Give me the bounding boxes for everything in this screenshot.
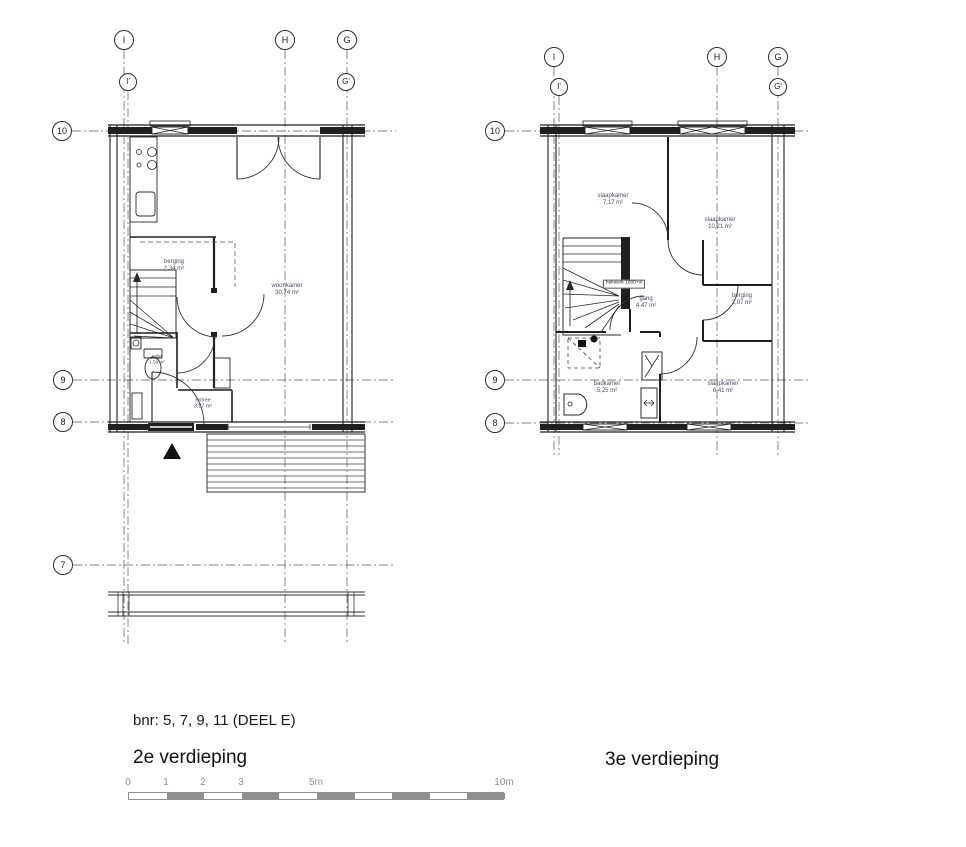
room-label-slaapkamer-1: slaapkamer 7,17 m²	[597, 193, 628, 207]
room-area: 2,34 m²	[164, 266, 184, 273]
grid-bubble-right-col-I: I	[544, 47, 564, 67]
grid-bubble-left-col-G-sub: G'	[337, 73, 355, 91]
room-name: woonkamer	[271, 283, 302, 290]
room-area: 4,47 m²	[636, 303, 656, 310]
room-name: slaapkamer	[704, 217, 735, 224]
floorplan-sheet: I H G I' G' 10 9 8 7 I H G I' G' 10 9 8 …	[0, 0, 966, 847]
room-name: berging	[164, 259, 184, 266]
plan-right-bathroom-fixtures	[564, 336, 662, 419]
grid-bubble-left-row-7: 7	[53, 555, 73, 575]
scale-segment	[467, 793, 505, 799]
room-area: 3,87 m²	[194, 404, 212, 410]
room-label-slaapkamer-2: slaapkamer 10,21 m²	[704, 217, 735, 231]
plan-left-stair	[130, 270, 176, 338]
scale-tick-5m: 5m	[309, 777, 323, 788]
scale-segment	[129, 793, 167, 799]
plan-right-walls	[540, 121, 795, 432]
grid-bubble-left-col-G: G	[337, 30, 357, 50]
room-label-badkamer: badkamer 5,25 m²	[594, 381, 621, 395]
scale-segment	[317, 793, 355, 799]
plan-right-title: 3e verdieping	[605, 749, 719, 771]
scale-segment	[279, 793, 317, 799]
scale-segment	[355, 793, 393, 799]
grid-bubble-left-col-H: H	[275, 30, 295, 50]
room-area: 2,07 m²	[732, 300, 752, 307]
grid-bubble-right-col-H: H	[707, 47, 727, 67]
grid-bubble-left-col-I-sub: I'	[119, 73, 137, 91]
room-label-gang: gang 4,47 m²	[636, 296, 656, 310]
room-label-woonkamer: woonkamer 30,74 m²	[271, 283, 302, 297]
grid-bubble-right-col-I-sub: I'	[550, 78, 568, 96]
room-label-entree: entree 3,87 m²	[194, 398, 212, 411]
grid-bubble-left-row-9: 9	[53, 370, 73, 390]
scale-segment	[167, 793, 205, 799]
railing-annotation: hekwerk 1000+vl	[603, 280, 645, 289]
room-label-berging: berging 2,34 m²	[164, 259, 184, 273]
scale-segment	[242, 793, 280, 799]
room-area: 5,25 m²	[594, 388, 621, 395]
grid-bubble-left-row-8: 8	[53, 412, 73, 432]
scale-tick-1: 1	[163, 777, 169, 788]
room-name: badkamer	[594, 381, 621, 388]
grid-bubble-right-col-G-sub: G'	[769, 78, 787, 96]
entrance-marker-icon	[163, 443, 181, 459]
plan-left-terrace	[207, 434, 365, 492]
grid-bubble-right-row-9: 9	[485, 370, 505, 390]
scale-tick-3: 3	[238, 777, 244, 788]
plan-left-window-icon	[152, 127, 188, 134]
grid-bubble-right-row-8: 8	[485, 413, 505, 433]
scale-tick-2: 2	[200, 777, 206, 788]
room-label-toilet: toilet 1,58 m²	[149, 354, 165, 365]
plan-left-kitchen	[130, 137, 157, 222]
plan-left-gallery-strip	[108, 592, 365, 616]
room-area: 6,41 m²	[707, 388, 738, 395]
room-name: gang	[636, 296, 656, 303]
room-name: slaapkamer	[597, 193, 628, 200]
room-label-slaapkamer-3: slaapkamer 6,41 m²	[707, 381, 738, 395]
room-label-berging-right: berging 2,07 m²	[732, 293, 752, 307]
scale-segment	[204, 793, 242, 799]
bnr-line: bnr: 5, 7, 9, 11 (DEEL E)	[133, 712, 296, 729]
plan-left-toilet-fixtures	[131, 337, 230, 419]
scale-bar	[128, 792, 504, 800]
room-area: 1,58 m²	[149, 359, 165, 365]
grid-bubble-right-row-10: 10	[485, 121, 505, 141]
room-name: slaapkamer	[707, 381, 738, 388]
plan-left-grid-lines	[72, 50, 396, 645]
grid-bubble-left-row-10: 10	[52, 121, 72, 141]
scale-tick-0: 0	[125, 777, 131, 788]
grid-bubble-right-col-G: G	[768, 47, 788, 67]
grid-bubble-left-col-I: I	[114, 30, 134, 50]
room-name: berging	[732, 293, 752, 300]
room-area: 30,74 m²	[271, 290, 302, 297]
room-area: 10,21 m²	[704, 224, 735, 231]
plan-left-title: 2e verdieping	[133, 747, 247, 769]
scale-tick-10m: 10m	[494, 777, 513, 788]
scale-segment	[430, 793, 468, 799]
room-area: 7,17 m²	[597, 200, 628, 207]
scale-segment	[392, 793, 430, 799]
